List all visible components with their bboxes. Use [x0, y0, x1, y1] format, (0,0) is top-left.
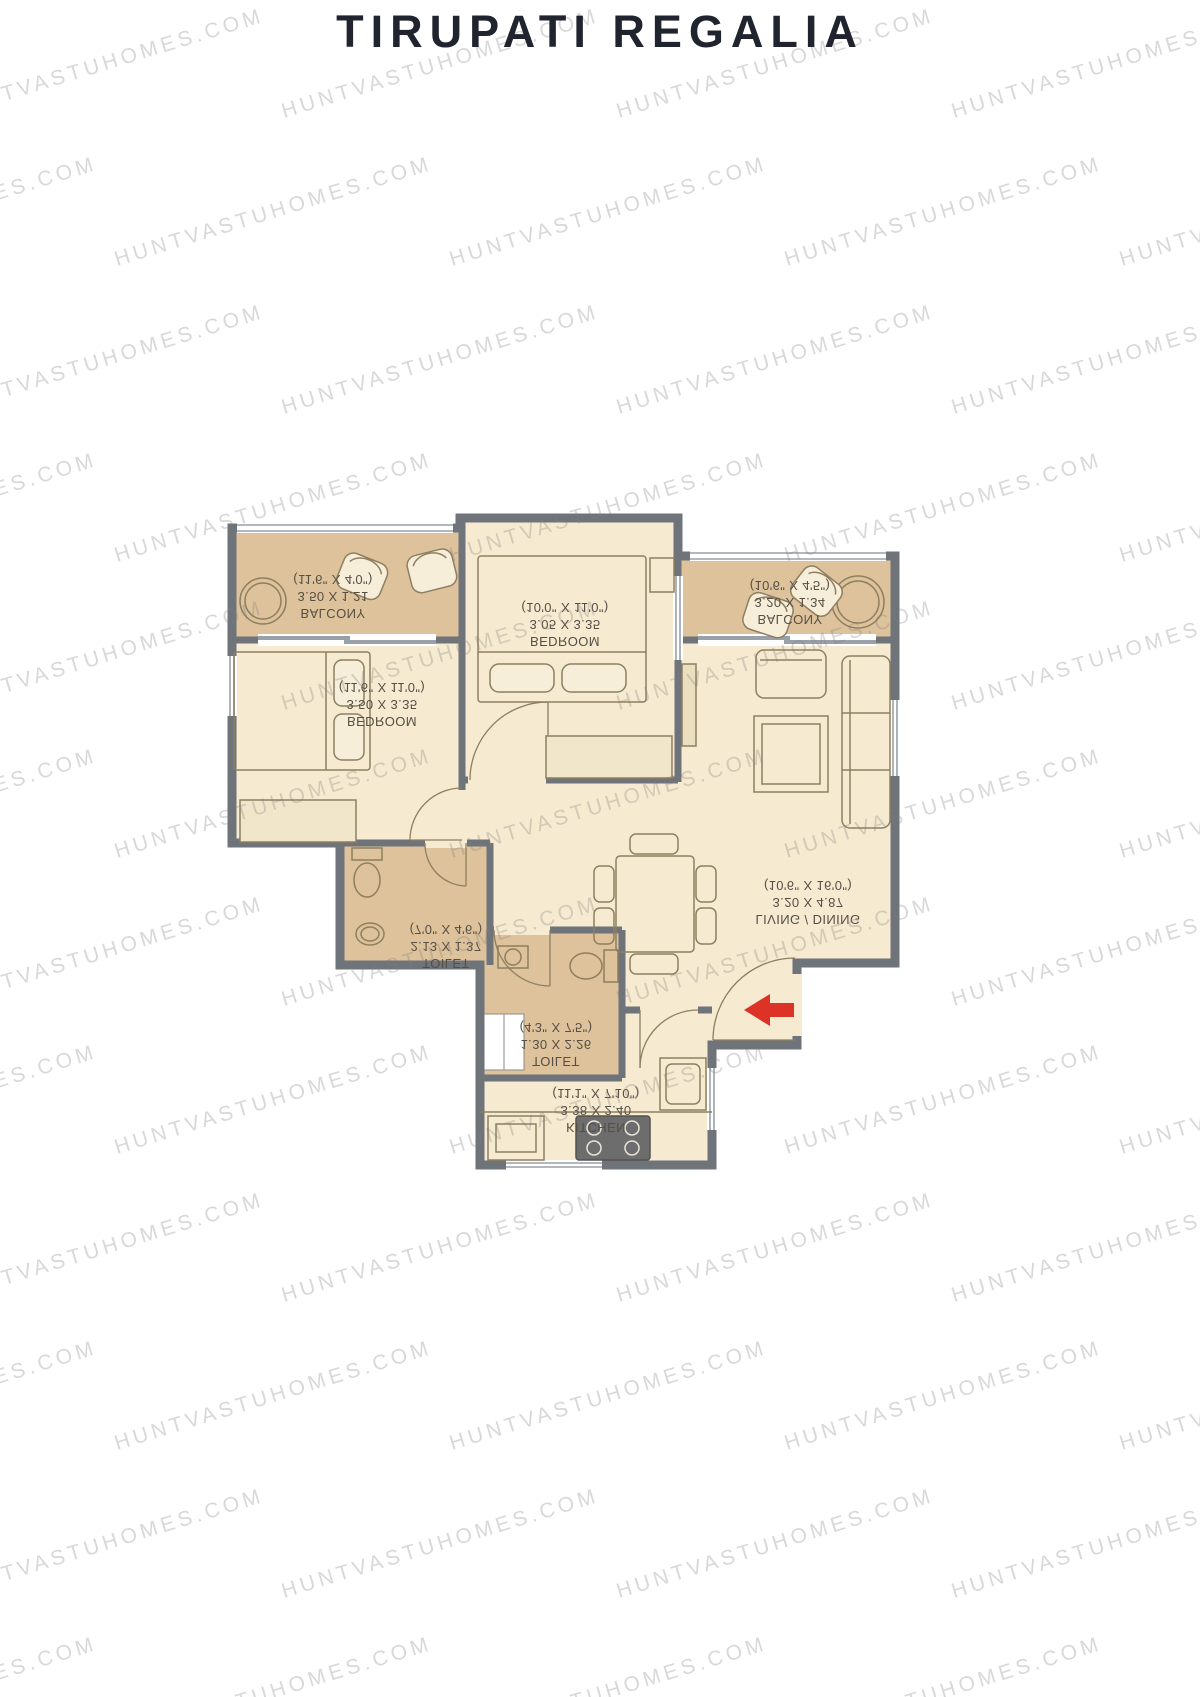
- room-dim-imperial: (7'0" X 4'6"): [410, 922, 483, 937]
- room-dim-imperial: (11'6" X 11'0"): [339, 680, 425, 695]
- room-name: BEDROOM: [530, 634, 600, 649]
- room-name: BEDROOM: [347, 714, 417, 729]
- room-dim-imperial: (10'6" X 16'0"): [764, 878, 852, 893]
- room-dim-imperial: (11'6" X 4'0"): [293, 572, 373, 587]
- label-bedroom-2: (10'0" X 11'0") 3.05 X 3.35 BEDROOM: [521, 600, 608, 649]
- room-dim-metric: 2.13 X 1.37: [411, 939, 482, 954]
- room-dim-metric: 3.20 X 1.34: [755, 595, 826, 610]
- room-dim-imperial: (11'1" X 7'10"): [552, 1086, 639, 1101]
- page: TIRUPATI REGALIA: [0, 0, 1200, 1697]
- pillow-icon: [490, 664, 554, 692]
- room-dim-imperial: (4'3" X 7'5"): [520, 1020, 593, 1035]
- label-balcony-1: (11'6" X 4'0") 3.50 X 1.21 BALCONY: [293, 572, 373, 621]
- room-name: LIVING / DINING: [756, 912, 861, 927]
- room-dim-metric: 3.20 X 4.87: [773, 895, 844, 910]
- room-dim-metric: 1.30 X 2.26: [521, 1037, 592, 1052]
- room-dim-metric: 3.05 X 3.35: [530, 617, 601, 632]
- tv-unit-icon: [682, 664, 696, 746]
- room-dim-imperial: (10'6" X 4'5"): [750, 578, 831, 593]
- room-name: TOILET: [532, 1054, 580, 1069]
- label-bedroom-1: (11'6" X 11'0") 3.50 X 3.35 BEDROOM: [339, 680, 425, 729]
- room-name: KITCHEN: [566, 1120, 626, 1135]
- room-dim-metric: 3.38 X 2.40: [561, 1103, 632, 1118]
- room-dim-imperial: (10'0" X 11'0"): [521, 600, 608, 615]
- room-name: BALCONY: [758, 612, 823, 627]
- room-name: BALCONY: [301, 606, 366, 621]
- room-dim-metric: 3.50 X 1.21: [298, 589, 369, 604]
- room-dim-metric: 3.50 X 3.35: [347, 697, 418, 712]
- floor-plan: (11'6" X 4'0") 3.50 X 1.21 BALCONY (10'0…: [0, 0, 1200, 1697]
- pillow-icon: [562, 664, 626, 692]
- label-balcony-2: (10'6" X 4'5") 3.20 X 1.34 BALCONY: [750, 578, 831, 627]
- room-name: TOILET: [422, 956, 470, 971]
- page-title: TIRUPATI REGALIA: [0, 6, 1200, 58]
